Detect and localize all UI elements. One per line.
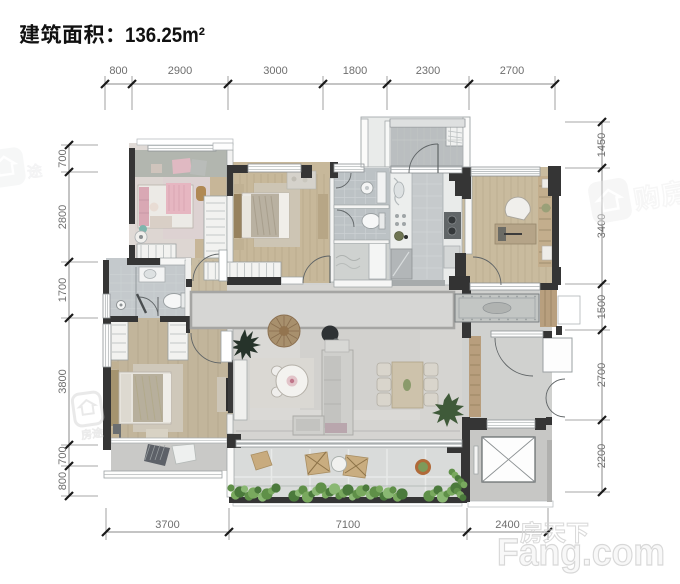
svg-text:800: 800: [57, 472, 69, 490]
svg-text:2800: 2800: [57, 205, 69, 229]
svg-text:800: 800: [109, 65, 127, 77]
svg-text:136.25m²: 136.25m²: [125, 24, 205, 47]
svg-text:1800: 1800: [343, 65, 367, 77]
svg-text:3700: 3700: [155, 519, 179, 531]
svg-text:3000: 3000: [263, 65, 287, 77]
svg-text:2700: 2700: [596, 363, 608, 387]
svg-text:2400: 2400: [495, 519, 519, 531]
svg-text:700: 700: [57, 149, 69, 167]
svg-text:7100: 7100: [336, 519, 360, 531]
svg-text:700: 700: [57, 446, 69, 464]
svg-text:1500: 1500: [596, 295, 608, 319]
svg-text:1700: 1700: [57, 278, 69, 302]
svg-text:3800: 3800: [57, 369, 69, 393]
svg-text:1450: 1450: [596, 133, 608, 157]
svg-text:2300: 2300: [416, 65, 440, 77]
svg-text:Fang.com: Fang.com: [497, 532, 665, 574]
svg-text:2700: 2700: [500, 65, 524, 77]
svg-text:2200: 2200: [596, 444, 608, 468]
svg-text:2900: 2900: [168, 65, 192, 77]
